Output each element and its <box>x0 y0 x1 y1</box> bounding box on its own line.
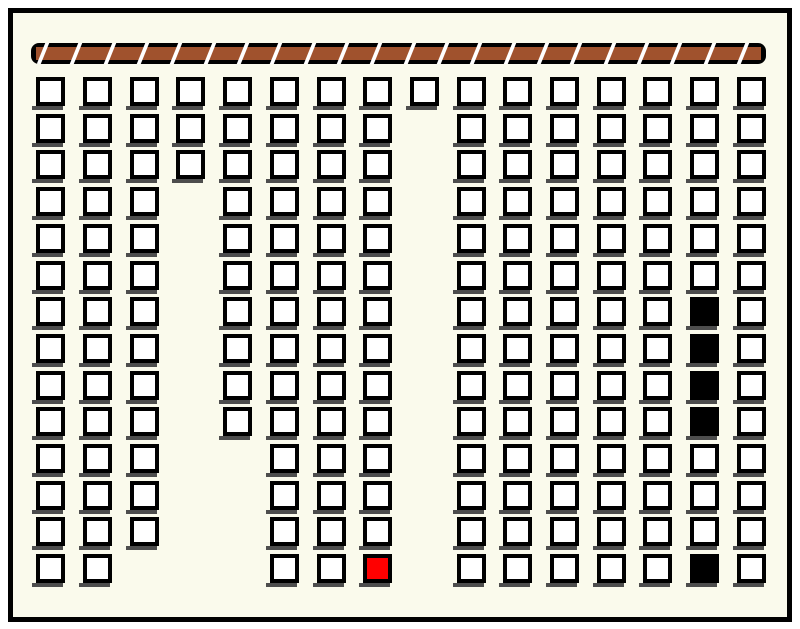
grid-square[interactable] <box>223 114 252 143</box>
grid-square[interactable] <box>317 297 346 326</box>
grid-square[interactable] <box>83 114 112 143</box>
grid-square[interactable] <box>363 187 392 216</box>
grid-square[interactable] <box>130 187 159 216</box>
grid-square[interactable] <box>223 371 252 400</box>
grid-square[interactable] <box>503 444 532 473</box>
grid-square[interactable] <box>270 481 299 510</box>
bar-hatch-gap <box>737 43 749 64</box>
grid-square[interactable] <box>503 371 532 400</box>
bar-hatch-gap <box>270 43 282 64</box>
grid-square[interactable] <box>363 371 392 400</box>
grid-square[interactable] <box>550 297 579 326</box>
grid-square[interactable] <box>690 261 719 290</box>
grid-square[interactable] <box>270 224 299 253</box>
lot-map-canvas <box>0 0 800 629</box>
grid-square[interactable] <box>737 371 766 400</box>
grid-square[interactable] <box>363 224 392 253</box>
bar-hatch-gap <box>303 43 315 64</box>
grid-square[interactable] <box>737 517 766 546</box>
grid-square[interactable] <box>503 334 532 363</box>
grid-square[interactable] <box>83 261 112 290</box>
grid-square[interactable] <box>317 481 346 510</box>
grid-square-black[interactable] <box>690 297 719 326</box>
grid-square[interactable] <box>270 334 299 363</box>
grid-square[interactable] <box>83 554 112 583</box>
grid-square[interactable] <box>597 224 626 253</box>
bar-hatch-gap <box>237 43 249 64</box>
grid-square[interactable] <box>36 114 65 143</box>
grid-square[interactable] <box>643 554 672 583</box>
grid-square[interactable] <box>83 407 112 436</box>
grid-square[interactable] <box>643 334 672 363</box>
grid-square[interactable] <box>36 334 65 363</box>
grid-square[interactable] <box>36 371 65 400</box>
grid-square[interactable] <box>550 261 579 290</box>
grid-square[interactable] <box>690 444 719 473</box>
grid-square-black[interactable] <box>690 334 719 363</box>
grid-square[interactable] <box>317 334 346 363</box>
bar-hatch-gap <box>537 43 549 64</box>
grid-square[interactable] <box>270 297 299 326</box>
grid-square[interactable] <box>457 77 486 106</box>
grid-square[interactable] <box>597 444 626 473</box>
grid-square[interactable] <box>83 150 112 179</box>
bar-hatch-gap <box>670 43 682 64</box>
grid-square[interactable] <box>737 224 766 253</box>
grid-square[interactable] <box>363 407 392 436</box>
grid-square[interactable] <box>690 114 719 143</box>
grid-square[interactable] <box>223 187 252 216</box>
grid-square[interactable] <box>270 261 299 290</box>
grid-square[interactable] <box>597 334 626 363</box>
bar-hatch-gap <box>503 43 515 64</box>
grid-square[interactable] <box>317 187 346 216</box>
grid-square[interactable] <box>130 261 159 290</box>
grid-square[interactable] <box>270 371 299 400</box>
grid-square[interactable] <box>643 187 672 216</box>
grid-square[interactable] <box>176 150 205 179</box>
grid-square[interactable] <box>36 444 65 473</box>
grid-square[interactable] <box>457 114 486 143</box>
grid-square[interactable] <box>597 481 626 510</box>
grid-square[interactable] <box>690 77 719 106</box>
grid-square[interactable] <box>457 407 486 436</box>
grid-square[interactable] <box>130 407 159 436</box>
grid-square[interactable] <box>550 481 579 510</box>
grid-square[interactable] <box>737 150 766 179</box>
grid-square[interactable] <box>270 187 299 216</box>
grid-square[interactable] <box>176 114 205 143</box>
grid-square[interactable] <box>223 224 252 253</box>
hatched-bar-track <box>36 47 761 60</box>
grid-square[interactable] <box>550 407 579 436</box>
bar-hatch-gap <box>103 43 115 64</box>
grid-square[interactable] <box>737 297 766 326</box>
grid-square[interactable] <box>643 517 672 546</box>
grid-square[interactable] <box>503 554 532 583</box>
grid-square[interactable] <box>363 114 392 143</box>
grid-square[interactable] <box>737 407 766 436</box>
grid-square[interactable] <box>83 334 112 363</box>
grid-square[interactable] <box>317 517 346 546</box>
bar-hatch-gap <box>170 43 182 64</box>
grid-square[interactable] <box>457 371 486 400</box>
grid-square[interactable] <box>223 334 252 363</box>
grid-square[interactable] <box>36 77 65 106</box>
grid-square[interactable] <box>83 444 112 473</box>
grid-square[interactable] <box>737 114 766 143</box>
grid-square[interactable] <box>223 297 252 326</box>
bar-hatch-gap <box>637 43 649 64</box>
bar-hatch-gap <box>403 43 415 64</box>
grid-square[interactable] <box>457 554 486 583</box>
grid-square[interactable] <box>83 371 112 400</box>
grid-square[interactable] <box>550 554 579 583</box>
grid-square[interactable] <box>457 517 486 546</box>
grid-square[interactable] <box>363 444 392 473</box>
grid-square[interactable] <box>690 517 719 546</box>
grid-square[interactable] <box>503 481 532 510</box>
grid-square[interactable] <box>597 407 626 436</box>
grid-square[interactable] <box>643 77 672 106</box>
grid-square-black[interactable] <box>690 554 719 583</box>
grid-square[interactable] <box>363 297 392 326</box>
grid-square[interactable] <box>550 187 579 216</box>
grid-square[interactable] <box>737 554 766 583</box>
grid-square[interactable] <box>597 297 626 326</box>
grid-square[interactable] <box>270 444 299 473</box>
grid-square[interactable] <box>317 444 346 473</box>
grid-square[interactable] <box>363 517 392 546</box>
bar-hatch-gap <box>470 43 482 64</box>
grid-square[interactable] <box>36 261 65 290</box>
grid-square[interactable] <box>737 444 766 473</box>
grid-square[interactable] <box>550 77 579 106</box>
bar-hatch-gap <box>203 43 215 64</box>
grid-square[interactable] <box>36 224 65 253</box>
bar-hatch-gap <box>37 43 49 64</box>
grid-square[interactable] <box>83 224 112 253</box>
grid-square-black[interactable] <box>690 407 719 436</box>
grid-square[interactable] <box>457 224 486 253</box>
grid-square[interactable] <box>550 334 579 363</box>
grid-square[interactable] <box>130 77 159 106</box>
grid-square[interactable] <box>130 371 159 400</box>
grid-square[interactable] <box>643 444 672 473</box>
grid-square[interactable] <box>130 517 159 546</box>
grid-square[interactable] <box>503 407 532 436</box>
grid-square[interactable] <box>457 334 486 363</box>
grid-square[interactable] <box>737 334 766 363</box>
grid-square[interactable] <box>643 150 672 179</box>
bar-hatch-gap <box>570 43 582 64</box>
grid-square[interactable] <box>550 114 579 143</box>
grid-square[interactable] <box>550 444 579 473</box>
grid-square[interactable] <box>597 371 626 400</box>
grid-square[interactable] <box>503 150 532 179</box>
grid-square[interactable] <box>737 187 766 216</box>
grid-square[interactable] <box>597 554 626 583</box>
grid-square[interactable] <box>503 114 532 143</box>
grid-square[interactable] <box>317 150 346 179</box>
grid-square[interactable] <box>597 114 626 143</box>
grid-square[interactable] <box>130 297 159 326</box>
grid-square[interactable] <box>690 224 719 253</box>
grid-square[interactable] <box>550 150 579 179</box>
bar-hatch-gap <box>437 43 449 64</box>
grid-square[interactable] <box>550 517 579 546</box>
grid-square[interactable] <box>317 407 346 436</box>
grid-square[interactable] <box>317 114 346 143</box>
grid-square[interactable] <box>36 517 65 546</box>
bar-hatch-gap <box>337 43 349 64</box>
bar-hatch-gap <box>137 43 149 64</box>
grid-square[interactable] <box>643 481 672 510</box>
grid-square[interactable] <box>503 517 532 546</box>
grid-square[interactable] <box>223 407 252 436</box>
grid-square[interactable] <box>550 224 579 253</box>
grid-square[interactable] <box>503 77 532 106</box>
bar-hatch-gap <box>603 43 615 64</box>
grid-square[interactable] <box>410 77 439 106</box>
grid-square[interactable] <box>36 297 65 326</box>
grid-square[interactable] <box>363 481 392 510</box>
grid-square[interactable] <box>36 407 65 436</box>
grid-square[interactable] <box>130 481 159 510</box>
grid-square[interactable] <box>737 77 766 106</box>
grid-square[interactable] <box>176 77 205 106</box>
grid-square[interactable] <box>690 481 719 510</box>
grid-square[interactable] <box>690 187 719 216</box>
grid-square[interactable] <box>36 481 65 510</box>
grid-square-red[interactable] <box>363 554 392 583</box>
grid-square[interactable] <box>643 371 672 400</box>
grid-square[interactable] <box>83 187 112 216</box>
grid-square[interactable] <box>270 114 299 143</box>
grid-square[interactable] <box>597 187 626 216</box>
grid-square[interactable] <box>597 517 626 546</box>
grid-square[interactable] <box>737 261 766 290</box>
grid-square[interactable] <box>270 77 299 106</box>
grid-square[interactable] <box>83 517 112 546</box>
grid-square[interactable] <box>597 77 626 106</box>
grid-square[interactable] <box>270 517 299 546</box>
grid-square[interactable] <box>317 77 346 106</box>
grid-square[interactable] <box>130 444 159 473</box>
grid-square[interactable] <box>36 187 65 216</box>
grid-square[interactable] <box>503 187 532 216</box>
grid-square[interactable] <box>643 261 672 290</box>
grid-square[interactable] <box>643 407 672 436</box>
grid-square[interactable] <box>223 261 252 290</box>
grid-square[interactable] <box>317 371 346 400</box>
hatched-bar <box>31 43 766 64</box>
grid-square[interactable] <box>83 77 112 106</box>
grid-square[interactable] <box>457 261 486 290</box>
grid-square-black[interactable] <box>690 371 719 400</box>
grid-square[interactable] <box>317 261 346 290</box>
grid-square[interactable] <box>363 334 392 363</box>
grid-square[interactable] <box>643 114 672 143</box>
grid-square[interactable] <box>597 261 626 290</box>
grid-square[interactable] <box>317 554 346 583</box>
grid-square[interactable] <box>457 187 486 216</box>
grid-square[interactable] <box>130 224 159 253</box>
grid-square[interactable] <box>83 297 112 326</box>
grid-square[interactable] <box>737 481 766 510</box>
bar-hatch-gap <box>370 43 382 64</box>
grid-square[interactable] <box>597 150 626 179</box>
grid-square[interactable] <box>270 150 299 179</box>
grid-square[interactable] <box>130 150 159 179</box>
grid-square[interactable] <box>270 407 299 436</box>
grid-square[interactable] <box>503 297 532 326</box>
grid-square[interactable] <box>36 554 65 583</box>
grid-square[interactable] <box>457 150 486 179</box>
grid-square[interactable] <box>130 334 159 363</box>
map-border-frame <box>8 8 792 622</box>
grid-square[interactable] <box>83 481 112 510</box>
grid-square[interactable] <box>457 444 486 473</box>
grid-square[interactable] <box>503 261 532 290</box>
grid-square[interactable] <box>130 114 159 143</box>
grid-square[interactable] <box>363 77 392 106</box>
grid-square[interactable] <box>643 224 672 253</box>
grid-square[interactable] <box>36 150 65 179</box>
grid-square[interactable] <box>457 297 486 326</box>
grid-square[interactable] <box>363 261 392 290</box>
grid-square[interactable] <box>690 150 719 179</box>
grid-square[interactable] <box>270 554 299 583</box>
grid-square[interactable] <box>457 481 486 510</box>
bar-hatch-gap <box>703 43 715 64</box>
grid-square[interactable] <box>550 371 579 400</box>
grid-square[interactable] <box>223 150 252 179</box>
grid-square[interactable] <box>223 77 252 106</box>
grid-square[interactable] <box>503 224 532 253</box>
grid-square[interactable] <box>317 224 346 253</box>
bar-hatch-gap <box>70 43 82 64</box>
grid-square[interactable] <box>363 150 392 179</box>
grid-square[interactable] <box>643 297 672 326</box>
